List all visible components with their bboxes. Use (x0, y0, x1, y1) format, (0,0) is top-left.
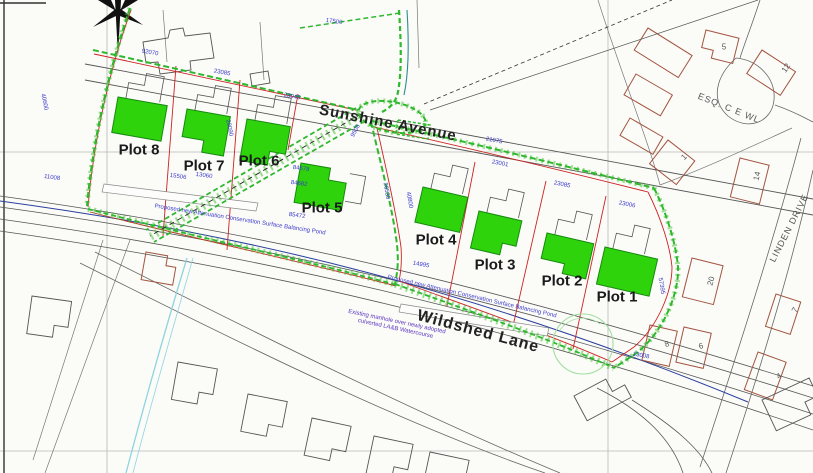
existing-building-north (143, 28, 270, 86)
plot-6-label: Plot 6 (239, 153, 280, 170)
bottom-street (80, 252, 560, 473)
house-plot-3[interactable] (470, 184, 528, 258)
plot-8-label: Plot 8 (119, 142, 160, 159)
house-number: 5 (722, 43, 726, 52)
plot-3-label: Plot 3 (475, 257, 516, 274)
plot-2-label: Plot 2 (542, 273, 583, 290)
plot-5-label: Plot 5 (302, 200, 343, 217)
house-plot-1[interactable] (596, 220, 663, 296)
house-number: 14 (752, 171, 763, 182)
house-plot-4[interactable] (415, 160, 474, 233)
site-plan-drawing (0, 0, 813, 473)
plot-7-label: Plot 7 (184, 158, 225, 175)
plot-1-label: Plot 1 (597, 289, 638, 306)
site-plan: Plot 8 Plot 7 Plot 6 Plot 5 Plot 4 Plot … (0, 0, 813, 473)
proposed-houses (112, 69, 664, 296)
plot-4-label: Plot 4 (416, 232, 457, 249)
watercourse-lines (0, 201, 748, 473)
field-lines (33, 0, 792, 473)
tree-canopy-icon (553, 314, 613, 374)
house-plot-8[interactable] (112, 69, 172, 141)
linden-drive-road[interactable] (700, 0, 813, 473)
